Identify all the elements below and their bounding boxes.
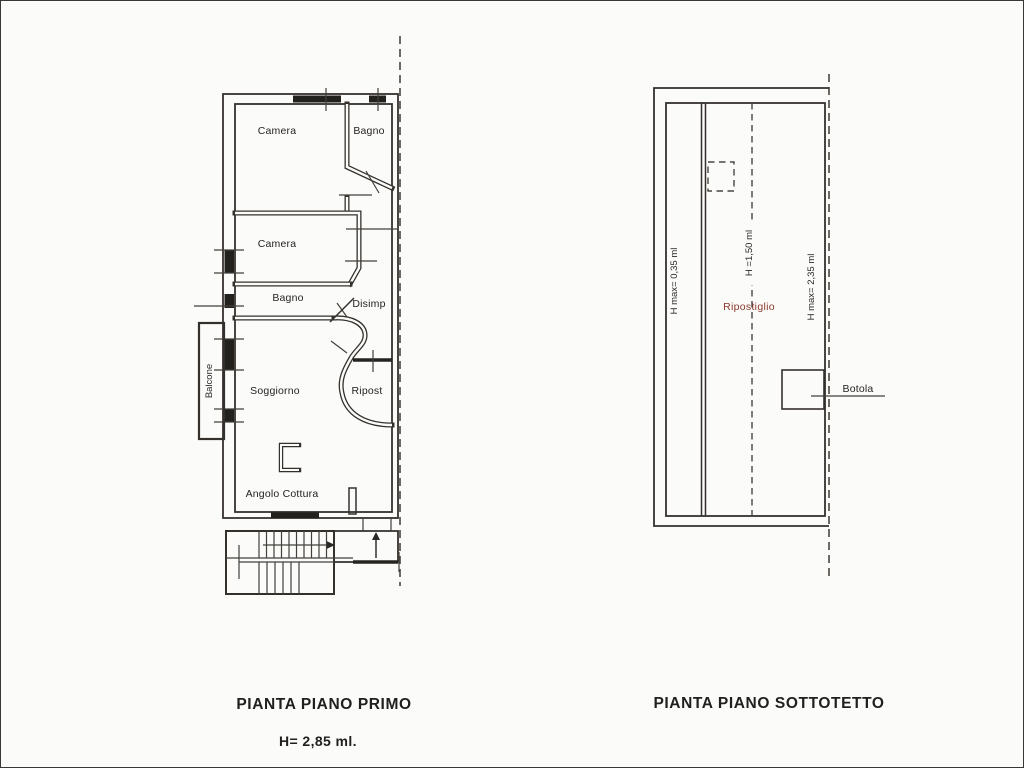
height-label-left: H max= 0,35 ml bbox=[669, 248, 680, 315]
caption-piano-primo: PIANTA PIANO PRIMO bbox=[236, 696, 411, 713]
scanned-floor-plan-sheet: Camera Bagno Camera Bagno Disimp Soggior… bbox=[0, 0, 1024, 768]
floor-plan-sottotetto: H max= 0,35 ml H =1,50 ml H max= 2,35 ml… bbox=[654, 74, 885, 581]
botola-hatch bbox=[782, 370, 824, 409]
entry-landing bbox=[334, 531, 398, 562]
curved-wall-ripost bbox=[334, 318, 392, 425]
stair-treads-lower bbox=[259, 562, 299, 594]
partition-walls bbox=[235, 104, 392, 425]
room-label-balcone: Balcone bbox=[204, 364, 215, 398]
floor-plan-primo: Camera Bagno Camera Bagno Disimp Soggior… bbox=[194, 36, 400, 594]
floor-plan-drawing: Camera Bagno Camera Bagno Disimp Soggior… bbox=[1, 1, 1024, 768]
label-botola: Botola bbox=[843, 383, 874, 395]
entry-up-arrow bbox=[372, 532, 380, 558]
interior-wall bbox=[702, 103, 706, 516]
height-label-right: H max= 2,35 ml bbox=[806, 254, 817, 321]
wall-stub bbox=[349, 488, 356, 514]
dashed-opening bbox=[708, 162, 734, 191]
room-label-ripost: Ripost bbox=[352, 385, 383, 397]
room-label-angolo-cottura: Angolo Cottura bbox=[246, 488, 319, 500]
height-label-ridge: H =1,50 ml bbox=[744, 230, 755, 276]
staircase bbox=[226, 518, 399, 594]
room-label-ripostiglio: Ripostiglio bbox=[723, 301, 775, 313]
room-label-disimp: Disimp bbox=[352, 298, 385, 310]
room-label-camera-2: Camera bbox=[258, 238, 297, 250]
room-label-camera-1: Camera bbox=[258, 125, 297, 137]
room-label-bagno-1: Bagno bbox=[353, 125, 384, 137]
room-label-soggiorno: Soggiorno bbox=[250, 385, 300, 397]
room-label-bagno-2: Bagno bbox=[272, 292, 303, 304]
caption-piano-sottotetto: PIANTA PIANO SOTTOTETTO bbox=[653, 695, 884, 712]
caption-height-note: H= 2,85 ml. bbox=[279, 733, 357, 749]
kitchen-counter bbox=[281, 445, 299, 470]
